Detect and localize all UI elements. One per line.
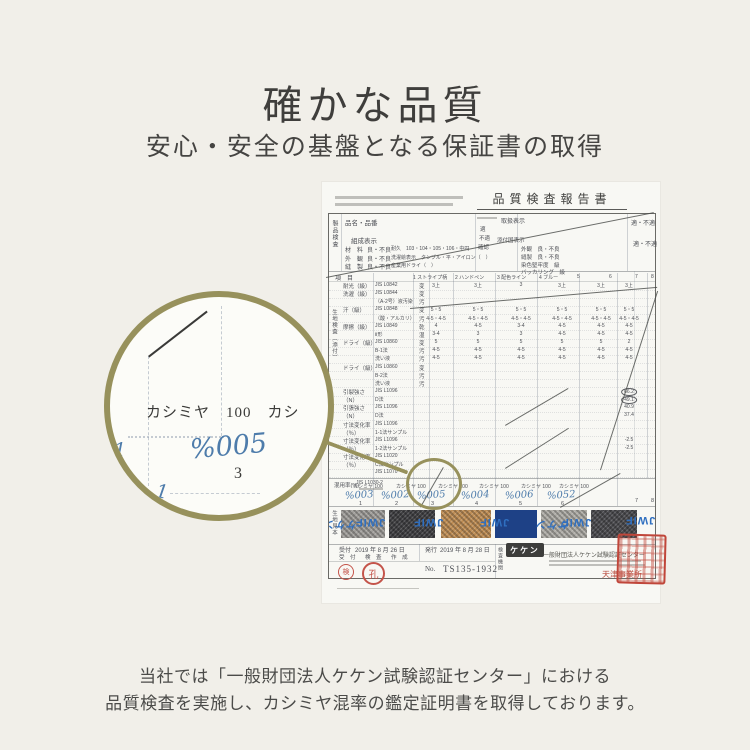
test-method: JIS L0860 <box>375 339 398 345</box>
test-method: 洗い液 <box>375 355 390 362</box>
fabric-check-row: 縫製 良・不良 <box>521 253 560 261</box>
inspection-table: 製品検査 品名・品番 組成表示 取扱表示 添付国表示 適・不適 適・不適 適不適… <box>328 213 656 579</box>
test-value: 5 <box>477 339 480 345</box>
divider <box>329 478 655 479</box>
test-value: 4-5 <box>597 347 604 353</box>
test-value: 4-5 <box>517 355 524 361</box>
test-method: JIS L0849 <box>375 323 398 329</box>
hanko-stamp: 孔 <box>362 562 385 585</box>
test-value: 4-5 <box>474 323 481 329</box>
test-value: 4-5・4-5 <box>619 315 638 322</box>
test-method: JIS L1096 <box>375 388 398 394</box>
test-value: 5・5 <box>557 306 568 313</box>
doc-title: 品質検査報告書 <box>477 190 627 210</box>
issue-date: 2019 年 8 月 28 日 <box>440 545 490 554</box>
test-method: JIS L0860 <box>375 364 398 370</box>
test-value: 4-5・4-5 <box>468 315 487 322</box>
test-value: 4-5 <box>625 355 632 361</box>
fabric-inspection-vertical-label: 生地検査（添付） <box>330 309 338 361</box>
test-value: 4-5・4-5 <box>591 315 610 322</box>
sample-column-header: 2 ハンドペン <box>455 274 484 281</box>
test-value: 5・5 <box>516 306 527 313</box>
test-value: 4-5 <box>474 347 481 353</box>
pass-fail-top: 適・不適 <box>631 218 655 227</box>
test-method: JIS L1096 <box>375 421 398 427</box>
test-value: 5 <box>600 339 603 345</box>
test-value: 5・5 <box>624 306 635 313</box>
test-method: Ⅱ形 <box>375 331 382 338</box>
test-value: 5・5 <box>596 306 607 313</box>
test-method: D法 <box>375 396 384 403</box>
test-value: 3 <box>520 282 523 288</box>
test-value: 4-5 <box>558 331 565 337</box>
mix-extra-column-number: 7 <box>635 498 638 504</box>
fabric-check-row: 染色堅牢度 級 <box>521 261 560 269</box>
test-method: D法 <box>375 412 384 419</box>
magnified-hand-code: %005 <box>189 428 269 466</box>
jwif-mark: JWIF <box>479 516 509 528</box>
grid-line <box>537 273 538 506</box>
grid-line <box>617 273 618 506</box>
test-value: 3-4 <box>432 331 439 337</box>
sample-column-header: 3 配色ライン <box>497 274 526 281</box>
divider <box>634 271 635 478</box>
test-value: 5 <box>520 339 523 345</box>
process-row: 受 付 検 査 作 成 <box>339 553 410 561</box>
test-method: JIS L0844 <box>375 290 398 296</box>
test-value: 4-5 <box>597 355 604 361</box>
test-value: 5 <box>435 339 438 345</box>
agency-vertical-label: 検査機関 <box>497 547 504 571</box>
handling-option: 適 <box>480 225 486 233</box>
test-value: 3上 <box>558 282 566 289</box>
sample-column-header: 4 ブルー <box>539 274 558 281</box>
issue-label: 発行 <box>425 545 437 554</box>
grid-line <box>495 273 496 506</box>
test-value: 4-5 <box>625 331 632 337</box>
hand-mark: 1 <box>114 439 126 461</box>
test-value: -2.5 <box>625 445 634 451</box>
composition-label: 組成表示 <box>351 235 377 245</box>
test-method: （A-2号）液汚染 <box>375 298 413 305</box>
test-value: 37.4 <box>624 412 634 418</box>
section-subtitle: 安心・安全の基盤となる保証書の取得 <box>0 127 750 163</box>
underline-mark <box>337 588 419 589</box>
fine-print-line <box>335 203 453 206</box>
test-method: 1-2法サンプル <box>375 445 407 452</box>
fine-print-line <box>477 217 497 219</box>
test-value: 4-5 <box>625 347 632 353</box>
test-value: 5・5 <box>431 306 442 313</box>
mix-extra-column-number: 8 <box>651 498 654 504</box>
test-value: 4-5 <box>625 323 632 329</box>
magnified-fiber-text: カシミヤ 100 カシ <box>146 401 300 422</box>
grid-line <box>170 493 260 494</box>
hanko-stamp: 検 <box>338 564 354 580</box>
grid-line <box>579 273 580 506</box>
test-value: 3-4 <box>517 323 524 329</box>
test-method: B-2法 <box>375 372 388 379</box>
jwif-mark: JWIF <box>355 516 385 528</box>
test-value: 3 <box>520 331 523 337</box>
product-name-label: 品名・品番 <box>345 217 378 227</box>
test-value: 4-5 <box>558 355 565 361</box>
sample-column-header: 1 ストライプ柄 <box>413 274 447 281</box>
detail-highlight-circle <box>406 458 462 510</box>
keken-mirror-mark: ケケン <box>535 518 568 533</box>
official-seal-stamp <box>616 533 666 584</box>
check-stroke-magnified <box>148 311 208 358</box>
test-value: 3 <box>477 331 480 337</box>
test-value: 4-5・4-5 <box>511 315 530 322</box>
test-value: 3上 <box>432 282 440 289</box>
fine-print-line <box>335 196 463 199</box>
sample-column-header: 7 <box>635 274 638 280</box>
test-value: 4-5 <box>432 347 439 353</box>
test-value: 4-5・4-5 <box>552 315 571 322</box>
test-value: -2.5 <box>625 437 634 443</box>
test-value: 2 <box>628 339 631 345</box>
test-method: （酸・アルカリ） <box>375 315 415 322</box>
test-value: 4-5 <box>597 323 604 329</box>
test-value: 4-5 <box>597 331 604 337</box>
test-method: 1-1法サンプル <box>375 429 407 436</box>
divider <box>341 214 342 271</box>
test-value: 5 <box>561 339 564 345</box>
test-method: JIS L0842 <box>375 282 398 288</box>
test-method: JIS L1070 <box>375 469 398 475</box>
test-value: 4-5 <box>517 347 524 353</box>
sample-column-header: 6 <box>609 274 612 280</box>
footer-note-line1: 当社では「一般財団法人ケケン試験認証センター」における <box>0 662 750 687</box>
jwif-mark: JWIF <box>413 516 443 528</box>
test-value: 4-5 <box>432 355 439 361</box>
keken-logo: ケケン <box>506 543 544 557</box>
divider <box>419 544 420 561</box>
test-method: JIS L1096 <box>375 437 398 443</box>
test-method: JIS L1096 <box>375 404 398 410</box>
product-inspection-vertical-label: 製品検査 <box>330 220 339 248</box>
handling-label: 取扱表示 <box>501 216 525 225</box>
fabric-swatch-strip: JWIFJWIFJWIFJWIFJWIFケケンケケン <box>329 506 655 544</box>
page: 確かな品質 安心・安全の基盤となる保証書の取得 品質検査報告書 製品検査 品名・… <box>0 0 750 750</box>
fabric-check-row: 外観 良・不良 <box>521 245 560 253</box>
hand-mark: 1 <box>155 480 170 503</box>
report-no-label: No. <box>425 565 435 573</box>
divider <box>627 214 628 271</box>
test-value: 4-5 <box>558 323 565 329</box>
test-value: 4 <box>435 323 438 329</box>
handling-option: 不適 <box>479 234 490 242</box>
pass-fail-second: 適・不適 <box>633 239 657 248</box>
report-no-value: TS135-1932 <box>443 564 498 574</box>
magnifier-circle: カシミヤ 100 カシ %005 3 1 1 <box>104 291 334 521</box>
test-value: 40.9 <box>624 404 634 410</box>
test-method: JIS L1020 <box>375 453 398 459</box>
grid-line <box>373 273 374 506</box>
divider <box>329 271 655 272</box>
divider <box>475 214 476 271</box>
test-value: 4-5 <box>474 355 481 361</box>
divider <box>329 561 495 562</box>
magnified-column-number: 3 <box>234 465 242 483</box>
jwif-mark: JWIF <box>625 514 655 526</box>
test-value: 3上 <box>597 282 605 289</box>
test-method: B-1法 <box>375 347 388 354</box>
footer-note-line2: 品質検査を実施し、カシミヤ混率の鑑定証明書を取得しております。 <box>0 689 750 714</box>
test-value: 4-5 <box>558 347 565 353</box>
test-method: 洗い液 <box>375 380 390 387</box>
sample-column-header: 8 <box>651 274 654 280</box>
test-value: 3上 <box>474 282 482 289</box>
section-title: 確かな品質 <box>0 73 750 131</box>
test-method: JIS L0848 <box>375 306 398 312</box>
grid-line <box>647 273 648 478</box>
row-line <box>329 477 655 478</box>
test-value: 5・5 <box>473 306 484 313</box>
fabric-sample-vertical-label: 生地見本 <box>330 510 338 536</box>
